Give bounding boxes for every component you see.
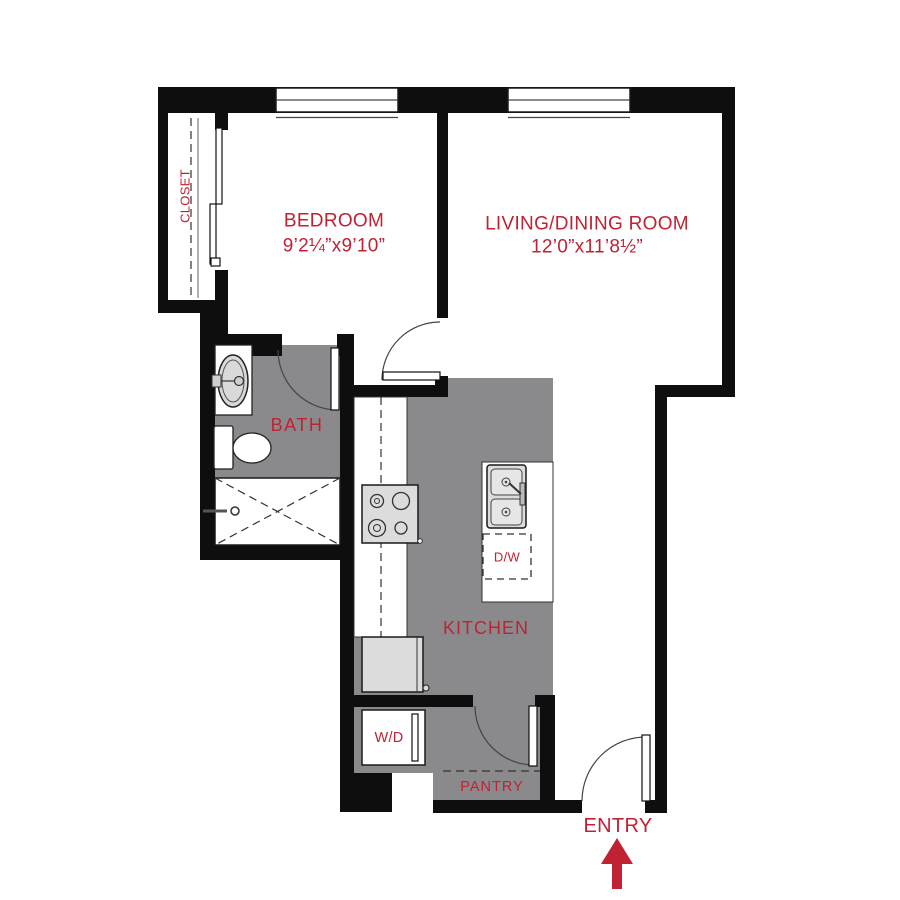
wall-bath-left xyxy=(200,332,215,560)
washer-dryer-label: W/D xyxy=(374,731,403,746)
dishwasher-label: D/W xyxy=(494,551,520,564)
living-dining-label: LIVING/DINING ROOM xyxy=(485,215,689,234)
bath-drain xyxy=(235,377,244,386)
stove-handle xyxy=(418,539,423,544)
kitchen-label: KITCHEN xyxy=(443,619,529,637)
pantry-label: PANTRY xyxy=(460,780,523,795)
entry-fixtures xyxy=(582,735,650,889)
bedroom-window xyxy=(276,88,398,118)
door-swing-arc xyxy=(382,322,440,380)
sink-drain-dot xyxy=(505,481,508,484)
wall-nook-bottom xyxy=(354,385,448,397)
refrigerator xyxy=(362,637,423,692)
bath-faucet xyxy=(212,375,221,387)
wall-entry-block xyxy=(645,800,667,813)
entry-door-swing-arc xyxy=(582,737,646,801)
entry-arrow-icon xyxy=(601,838,633,864)
wall-hallway-right xyxy=(655,385,667,813)
sink-drain-dot xyxy=(505,511,508,514)
closet-sliding-door-panel-1 xyxy=(216,128,222,204)
living-room-window xyxy=(508,88,630,118)
wall-bath-kitchen-spine xyxy=(340,334,354,812)
pantry-door-leaf xyxy=(529,706,537,766)
bath-label: BATH xyxy=(271,416,324,434)
closet-door-handle xyxy=(211,258,220,266)
entry-arrow-stem xyxy=(612,862,622,889)
bedroom-door xyxy=(382,322,440,380)
wall-closet-left xyxy=(158,87,168,313)
wall-bath-bottom xyxy=(200,545,354,560)
closet-label: CLOSET xyxy=(179,169,192,223)
refrigerator-handle xyxy=(423,685,429,691)
entry-label: ENTRY xyxy=(584,816,653,836)
floor-plan: CLOSET BEDROOM 9’2¼”x9’10” LIVING/DINING… xyxy=(0,0,900,900)
wall-laundry-right xyxy=(540,695,555,813)
door-leaf xyxy=(383,372,440,380)
bedroom-label: BEDROOM xyxy=(284,212,384,231)
wall-laundry-top xyxy=(340,695,473,707)
wall-recess xyxy=(392,773,433,820)
closet-sliding-door-panel-2 xyxy=(210,204,216,264)
wall-right xyxy=(722,87,735,397)
wall-bottom-left-block xyxy=(340,773,392,812)
wall-closet-stub-bottom xyxy=(215,270,228,313)
toilet-tank xyxy=(214,426,233,469)
wall-top xyxy=(158,87,735,113)
entry-door-leaf xyxy=(642,735,650,801)
wall-bottom xyxy=(433,800,582,813)
floor-plan-drawing xyxy=(0,0,900,900)
living-dining-dimensions: 12’0”x11’8½” xyxy=(531,238,643,257)
washer-dryer-door xyxy=(412,714,418,761)
toilet-bowl xyxy=(233,433,271,463)
bedroom-dimensions: 9’2¼”x9’10” xyxy=(283,237,386,256)
bath-door-leaf xyxy=(331,348,339,410)
wall-bedroom-living-partition xyxy=(437,113,448,318)
